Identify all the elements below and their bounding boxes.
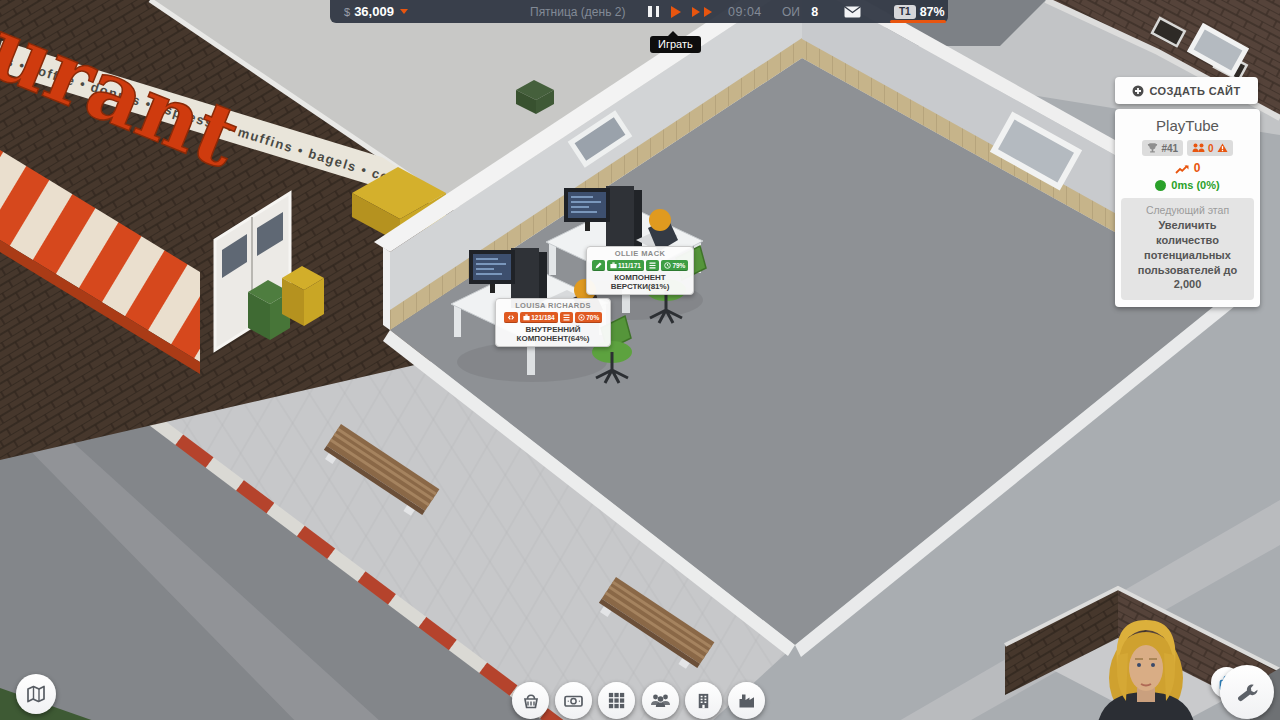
inventory-chip: 111/171 — [607, 260, 644, 271]
team-percent: 87% — [920, 5, 945, 19]
factory-icon — [737, 691, 757, 710]
team-tab-underline — [890, 20, 946, 23]
status-dot — [1155, 180, 1166, 191]
play-icon — [671, 6, 681, 18]
inventory-button[interactable] — [598, 682, 635, 719]
currency-symbol: $ — [344, 6, 350, 18]
map-icon — [25, 683, 47, 705]
game-date: Пятница (день 2) — [530, 0, 625, 23]
pc-tower — [606, 186, 634, 246]
shop-button[interactable] — [512, 682, 549, 719]
briefcase-icon — [610, 262, 617, 269]
map-button[interactable] — [16, 674, 56, 714]
growth-stat: 0 — [1115, 161, 1260, 175]
team-button[interactable] — [642, 682, 679, 719]
list-icon — [563, 314, 570, 321]
pause-button[interactable] — [648, 0, 659, 23]
banknote-icon — [563, 691, 584, 711]
build-mode-button[interactable] — [1220, 665, 1274, 719]
money-display[interactable]: $ 36,009 — [344, 0, 408, 23]
worker-task: КОМПОНЕНТ ВЕРСТКИ(81%) — [590, 273, 690, 291]
worker-tooltip-ollie[interactable]: OLLIE MACK 111/171 79% КОМПОНЕНТ ВЕРСТКИ… — [586, 246, 694, 295]
production-button[interactable] — [728, 682, 765, 719]
worker-name: OLLIE MACK — [590, 249, 690, 258]
component-chip — [592, 260, 605, 271]
next-stage-label: Следующий этап — [1127, 204, 1248, 216]
office-button[interactable] — [685, 682, 722, 719]
briefcase-icon — [523, 314, 530, 321]
queue-chip — [560, 312, 573, 323]
coin-icon — [578, 314, 585, 321]
team-icon — [650, 691, 671, 710]
grid-icon — [607, 691, 626, 710]
top-bar: $ 36,009 Пятница (день 2) 09:04 ОИ 8 T1 … — [330, 0, 948, 23]
create-site-button[interactable]: СОЗДАТЬ САЙТ — [1115, 77, 1258, 104]
clock-icon — [664, 262, 671, 269]
site-card[interactable]: PlayTube #41 0 0 0ms — [1115, 109, 1260, 307]
worker-tooltip-louisa[interactable]: LOUISA RICHARDS 121/184 70% ВНУТРЕННИЙ К… — [495, 298, 611, 347]
list-icon — [649, 262, 656, 269]
inventory-chip: 121/184 — [520, 312, 558, 323]
chart-line-icon — [1175, 163, 1190, 174]
bin-yellow[interactable] — [282, 266, 324, 326]
worker-name: LOUISA RICHARDS — [499, 301, 607, 310]
wrench-icon — [1235, 680, 1259, 704]
site-name: PlayTube — [1115, 117, 1260, 134]
salary-chip: 70% — [575, 312, 603, 323]
game-time: 09:04 — [728, 0, 762, 23]
component-chip — [504, 312, 518, 323]
basket-icon — [521, 691, 541, 711]
oi-counter: ОИ 8 — [782, 0, 818, 23]
money-value: 36,009 — [354, 4, 394, 19]
team-badge: T1 — [894, 5, 916, 19]
plus-circle-icon — [1132, 85, 1144, 97]
queue-chip — [646, 260, 659, 271]
users-icon — [1192, 143, 1205, 153]
employee-ollie-head[interactable] — [649, 209, 671, 231]
pencil-icon — [595, 262, 602, 269]
play-tooltip: Играть — [650, 36, 701, 53]
rank-badge: #41 — [1142, 140, 1183, 156]
mail-icon — [844, 6, 861, 18]
fast-forward-button[interactable] — [692, 0, 712, 23]
next-stage-box: Следующий этап Увеличить количество поте… — [1121, 198, 1254, 300]
game-viewport: s • coffee • donuts • espresso • muffins… — [0, 0, 1280, 720]
warning-icon — [1217, 143, 1228, 153]
next-stage-text: Увеличить количество потенциальных польз… — [1127, 218, 1248, 292]
chevron-down-icon — [400, 9, 408, 14]
finance-button[interactable] — [555, 682, 592, 719]
mail-button[interactable] — [844, 0, 861, 23]
worker-task: ВНУТРЕННИЙ КОМПОНЕНТ(64%) — [499, 325, 607, 343]
play-button[interactable] — [671, 0, 681, 23]
latency-stat: 0ms (0%) — [1115, 179, 1260, 191]
code-icon — [507, 314, 515, 321]
game-scene: s • coffee • donuts • espresso • muffins… — [0, 0, 1280, 720]
building-icon — [694, 691, 713, 711]
users-badge: 0 — [1187, 140, 1233, 156]
trophy-icon — [1147, 142, 1158, 154]
timer-chip: 79% — [661, 260, 689, 271]
